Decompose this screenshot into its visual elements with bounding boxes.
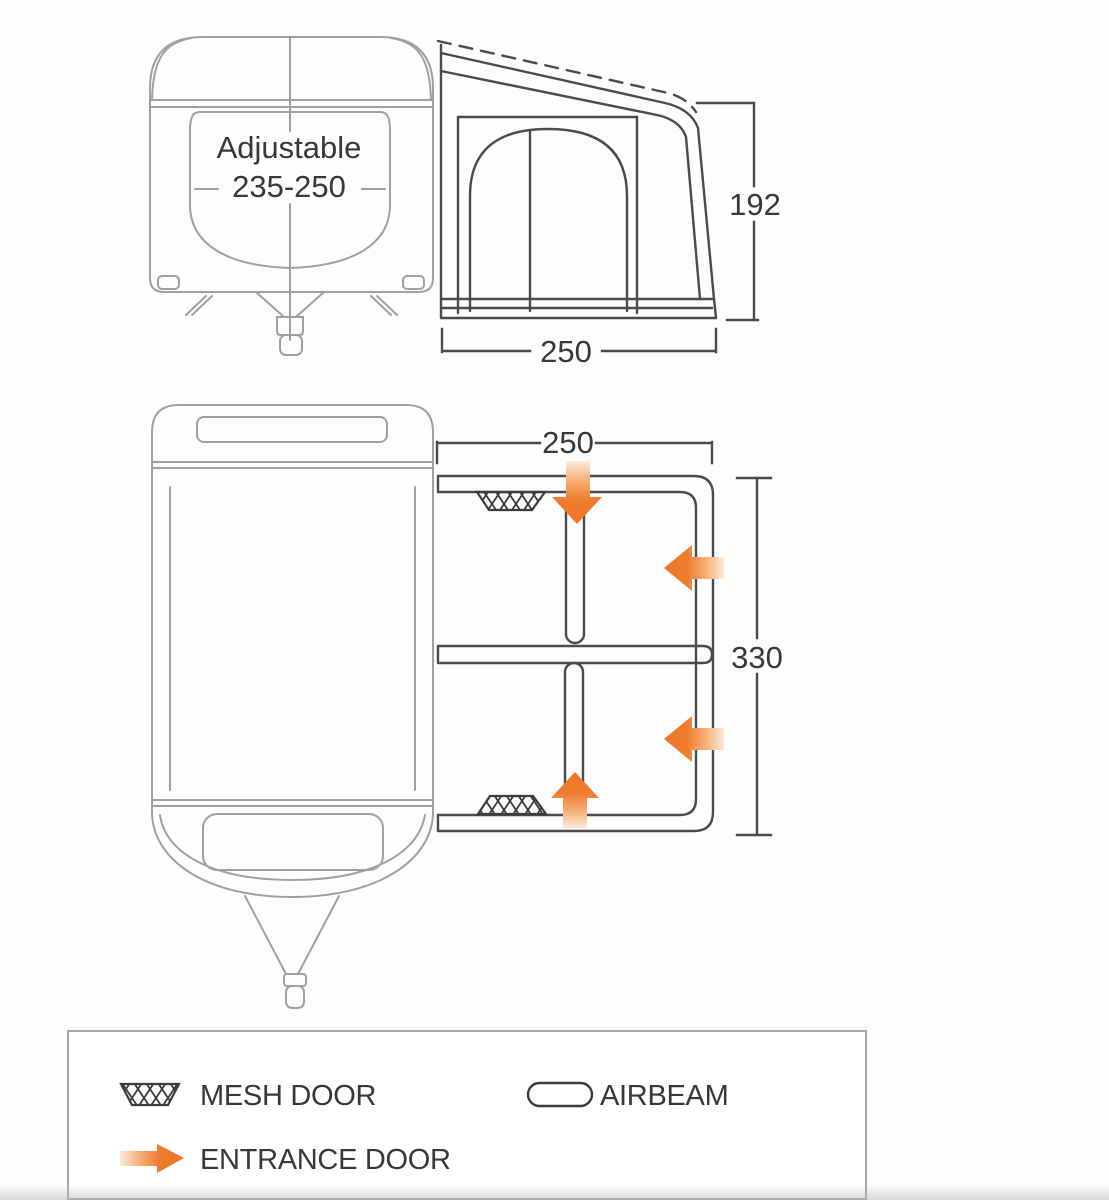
awning-side-ground-band: [441, 299, 716, 318]
awning-side-door-panel: [458, 117, 637, 313]
awning-plan-view: [438, 461, 724, 831]
entrance-arrow-right-upper: [664, 545, 724, 591]
caravan-front-view: Adjustable 235-250: [150, 37, 433, 355]
mesh-door-bottom: [478, 796, 546, 814]
awning-depth-value: 330: [731, 640, 783, 675]
awning-side-door-arch: [470, 129, 627, 311]
mesh-door-top: [477, 492, 545, 510]
legend-mesh-door-label: MESH DOOR: [200, 1080, 376, 1112]
airbeam-middle-horizontal: [438, 646, 712, 663]
diagram-canvas: Adjustable 235-250 192 250: [0, 0, 1109, 1200]
bottom-fade-strip: [0, 1184, 1109, 1200]
entrance-arrow-bottom: [551, 772, 599, 828]
dimension-height-192: 192: [697, 103, 781, 320]
dimension-width-250-plan: 250: [437, 425, 712, 463]
caravan-size-label-line1: Adjustable: [217, 130, 362, 165]
awning-width-value-side: 250: [540, 334, 592, 369]
entrance-arrow-right-lower: [664, 716, 724, 762]
awning-side-view: [438, 41, 716, 318]
awning-width-value-plan: 250: [542, 425, 594, 460]
awning-height-value: 192: [729, 187, 781, 222]
legend-entrance-door-label: ENTRANCE DOOR: [200, 1144, 451, 1176]
awning-side-roof-outer: [441, 53, 716, 318]
legend-box: MESH DOOR AIRBEAM ENTRANCE DOOR: [68, 1031, 866, 1199]
caravan-size-label-line2: 235-250: [232, 169, 346, 204]
dimension-width-250-side: 250: [442, 329, 716, 369]
caravan-top-view: [152, 405, 433, 1008]
airbeam-icon: [528, 1083, 592, 1106]
dimension-depth-330: 330: [731, 478, 783, 835]
legend-border: [68, 1031, 866, 1199]
mesh-door-icon: [121, 1084, 179, 1105]
awning-diagram-page: Adjustable 235-250 192 250: [0, 0, 1109, 1200]
awning-side-roof-inner: [441, 71, 700, 299]
legend-airbeam-label: AIRBEAM: [600, 1080, 728, 1112]
